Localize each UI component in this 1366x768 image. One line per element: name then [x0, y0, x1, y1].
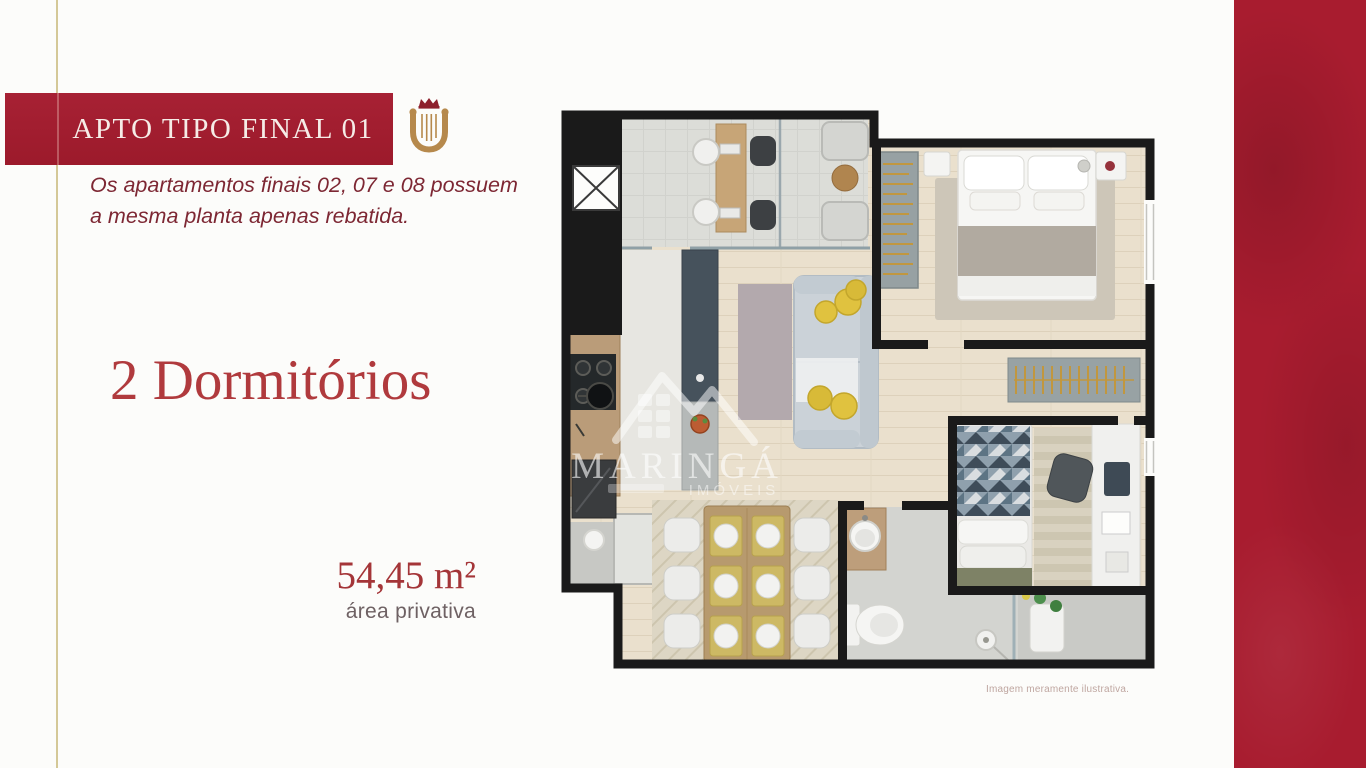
master-wardrobe — [878, 152, 918, 288]
bedrooms-heading: 2 Dormitórios — [110, 348, 431, 413]
toilet — [844, 604, 904, 646]
elevator-shaft — [573, 166, 619, 210]
bedroom2-rug — [1034, 428, 1092, 586]
title-banner: APTO TIPO FINAL 01 — [5, 93, 393, 165]
dining-set — [664, 506, 830, 662]
red-side-band — [1234, 0, 1366, 768]
sofa — [794, 276, 878, 448]
watermark-tagline-text: IMÓVEIS — [689, 482, 780, 499]
master-bed — [958, 150, 1096, 300]
page-root: { "page": { "background_color": "#fcfcfa… — [0, 0, 1366, 768]
banner-seam-line — [57, 93, 59, 165]
floorplan: MARINGÁ IMÓVEIS — [556, 108, 1166, 670]
watermark-smallword-blur — [608, 484, 664, 493]
page-title: APTO TIPO FINAL 01 — [72, 113, 373, 146]
bathroom-sink — [844, 508, 886, 570]
disclaimer-text: Imagem meramente ilustrativa. — [986, 684, 1129, 695]
bedroom2-bed — [954, 424, 1032, 590]
watermark-brand-text: MARINGÁ — [571, 445, 783, 487]
area-value: 54,45 m² — [296, 556, 476, 597]
area-block: 54,45 m² área privativa — [296, 556, 476, 624]
hall-wardrobe — [1008, 358, 1140, 402]
subtitle-line-1: Os apartamentos finais 02, 07 e 08 possu… — [90, 170, 530, 201]
subtitle-line-2: a mesma planta apenas rebatida. — [90, 201, 530, 232]
living-rug — [738, 284, 792, 420]
area-label: área privativa — [296, 600, 476, 624]
crown-logo-icon — [402, 96, 456, 158]
subtitle: Os apartamentos finais 02, 07 e 08 possu… — [90, 170, 530, 232]
